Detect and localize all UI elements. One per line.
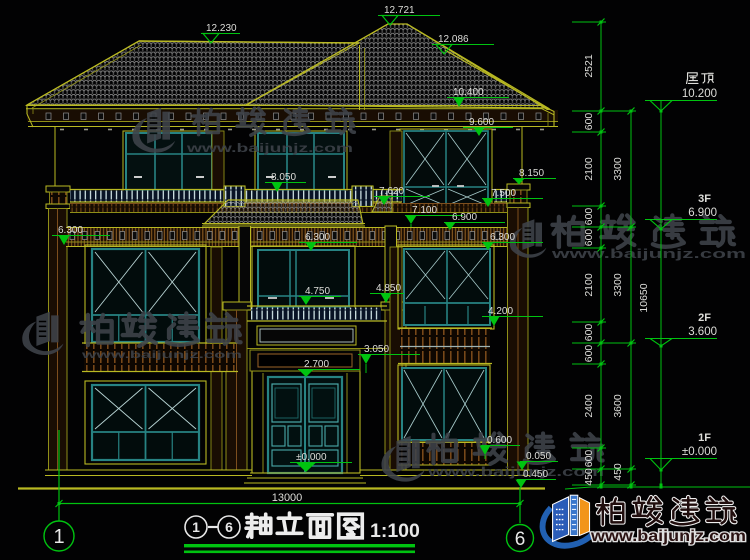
svg-text:10650: 10650	[638, 283, 650, 312]
svg-text:2400: 2400	[583, 394, 595, 418]
svg-text:6.900: 6.900	[452, 212, 477, 223]
svg-text:6: 6	[515, 529, 526, 550]
svg-text:600: 600	[583, 113, 595, 131]
svg-text:1: 1	[192, 519, 200, 535]
svg-text:600: 600	[583, 450, 595, 468]
svg-text:6.900: 6.900	[688, 207, 717, 219]
svg-text:6.300: 6.300	[58, 225, 83, 236]
svg-text:www.baijunjz.com: www.baijunjz.com	[426, 465, 604, 479]
svg-text:www.baijunjz.com: www.baijunjz.com	[80, 349, 242, 361]
svg-text:12.721: 12.721	[384, 5, 415, 16]
svg-text:2.700: 2.700	[304, 359, 329, 370]
svg-text:600: 600	[583, 208, 595, 226]
svg-text:4.850: 4.850	[376, 283, 401, 294]
svg-text:0.050: 0.050	[526, 451, 551, 462]
svg-text:600: 600	[583, 345, 595, 363]
svg-text:4.750: 4.750	[305, 286, 330, 297]
svg-text:4.200: 4.200	[488, 306, 513, 317]
svg-text:±0.000: ±0.000	[296, 452, 327, 463]
svg-text:7.620: 7.620	[379, 186, 404, 197]
svg-text:1F: 1F	[698, 432, 711, 444]
svg-text:7.100: 7.100	[412, 205, 437, 216]
svg-text:6.300: 6.300	[305, 232, 330, 243]
svg-text:450: 450	[612, 463, 624, 481]
svg-text:±0.000: ±0.000	[682, 446, 717, 458]
svg-text:0.600: 0.600	[487, 435, 512, 446]
svg-text:2F: 2F	[698, 312, 711, 324]
svg-text:450: 450	[583, 468, 595, 486]
svg-text:600: 600	[583, 229, 595, 247]
svg-text:3300: 3300	[612, 273, 624, 297]
svg-text:0.450: 0.450	[523, 469, 548, 480]
svg-text:3F: 3F	[698, 193, 711, 205]
svg-text:2100: 2100	[583, 157, 595, 181]
svg-text:3.050: 3.050	[364, 344, 389, 355]
svg-text:1: 1	[53, 526, 64, 548]
svg-text:3300: 3300	[612, 157, 624, 181]
svg-text:2100: 2100	[583, 273, 595, 297]
svg-text:8.150: 8.150	[519, 168, 544, 179]
svg-text:www.baijunjz.com: www.baijunjz.com	[185, 141, 353, 155]
svg-text:12.230: 12.230	[206, 23, 237, 34]
svg-text:2521: 2521	[583, 54, 595, 78]
svg-text:3.600: 3.600	[688, 326, 717, 338]
svg-text:9.600: 9.600	[469, 117, 494, 128]
svg-text:www.baijunjz.com: www.baijunjz.com	[590, 528, 746, 545]
svg-text:600: 600	[583, 324, 595, 342]
svg-text:6.300: 6.300	[490, 232, 515, 243]
svg-text:6: 6	[225, 519, 233, 535]
svg-text:8.050: 8.050	[271, 172, 296, 183]
svg-text:10.400: 10.400	[453, 87, 484, 98]
svg-text:10.200: 10.200	[682, 88, 717, 100]
svg-text:7.500: 7.500	[491, 188, 516, 199]
svg-text:3600: 3600	[612, 394, 624, 418]
svg-text:1:100: 1:100	[370, 520, 420, 542]
svg-text:13000: 13000	[272, 492, 303, 504]
svg-text:12.086: 12.086	[438, 34, 469, 45]
